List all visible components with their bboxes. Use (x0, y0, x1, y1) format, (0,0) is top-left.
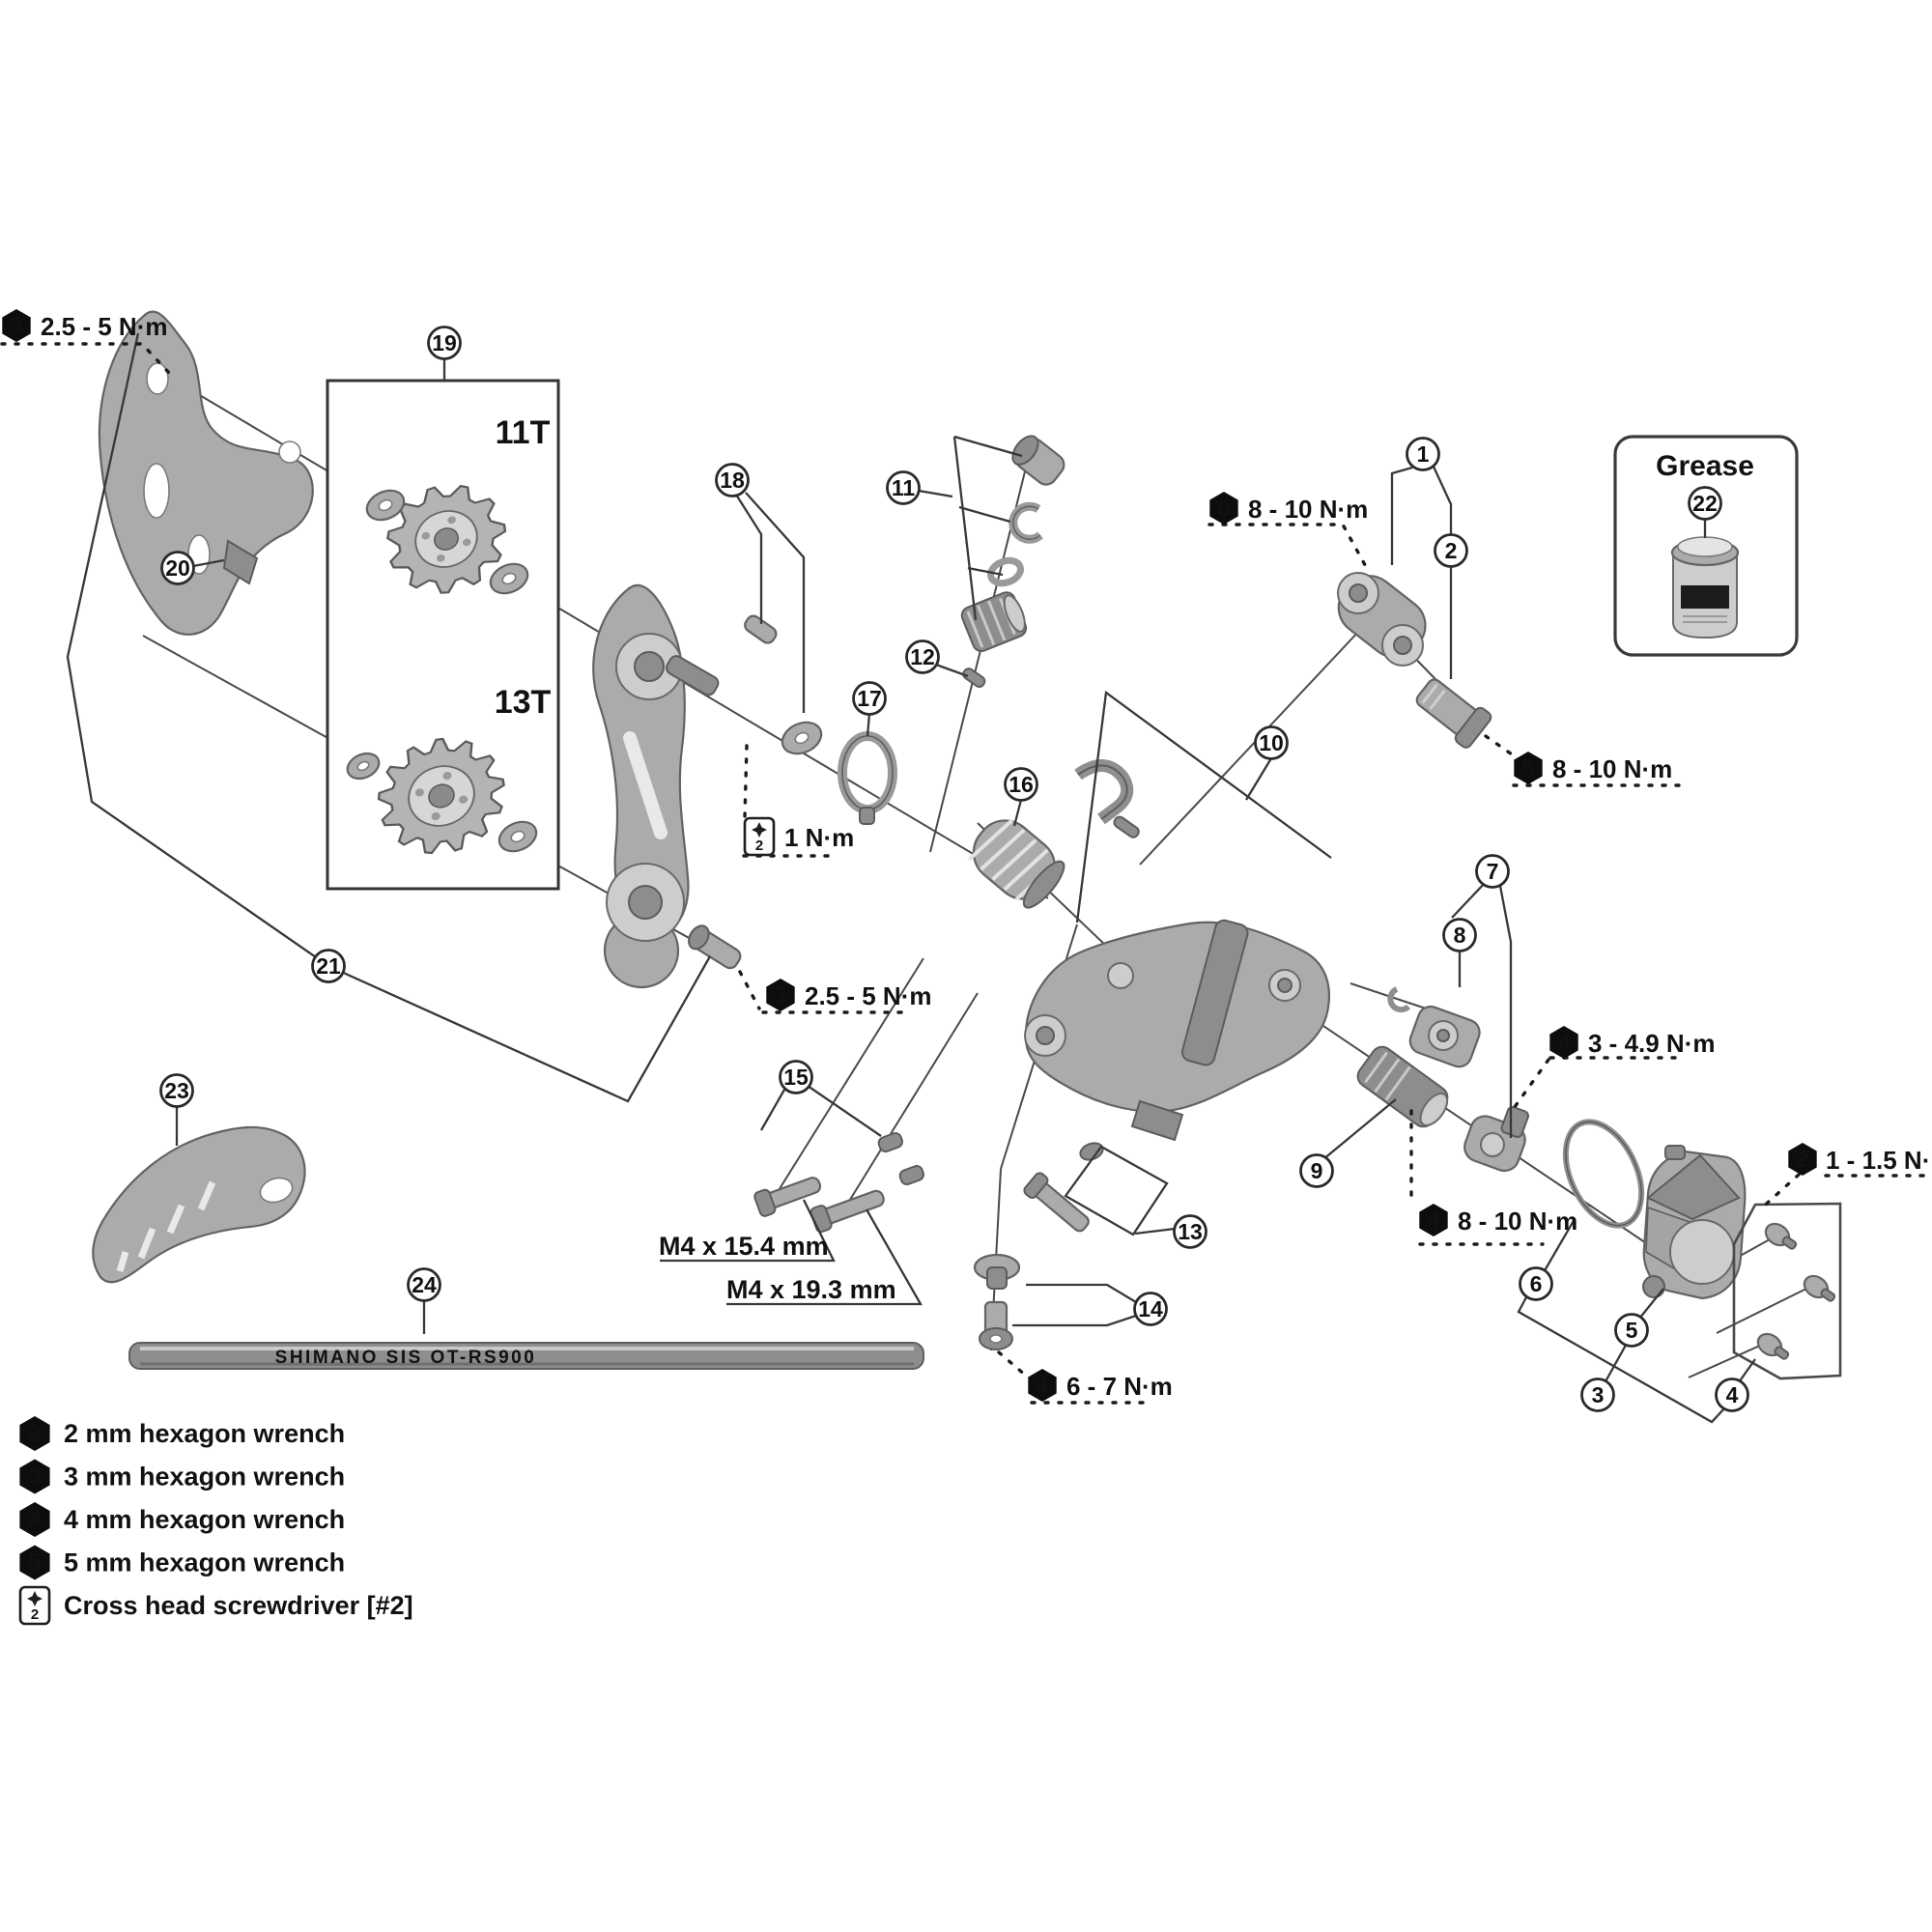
grease-title: Grease (1656, 450, 1754, 482)
tool-legend: 22 mm hexagon wrench33 mm hexagon wrench… (19, 1416, 412, 1624)
callout-2: 2 (1435, 535, 1467, 567)
torque-label-1: 32.5 - 5 N·m (2, 309, 167, 342)
callout-21: 21 (313, 951, 345, 982)
callout-16: 16 (1006, 769, 1037, 801)
legend-item-3: 44 mm hexagon wrench (19, 1502, 345, 1537)
tool-size: 3 (775, 982, 787, 1008)
torque-label-7: 46 - 7 N·m (1028, 1369, 1173, 1402)
callout-22: 22 (1690, 488, 1721, 520)
callout-number: 1 (1417, 441, 1430, 467)
cable-adjust-stack (959, 432, 1068, 689)
torque-value: 2.5 - 5 N·m (805, 981, 932, 1010)
callout-number: 12 (910, 644, 935, 669)
callout-5: 5 (1616, 1315, 1648, 1347)
legend-tool-symbol: 3 (28, 1463, 42, 1490)
callout-14: 14 (1135, 1293, 1167, 1325)
callout-7: 7 (1477, 856, 1509, 888)
callout-10: 10 (1256, 727, 1288, 759)
label-pulley-13t: 13T (495, 684, 552, 721)
callout-17: 17 (854, 683, 886, 715)
legend-tool-symbol: 5 (28, 1549, 42, 1576)
callout-3: 3 (1582, 1379, 1614, 1411)
cover-screw-set (1734, 1204, 1840, 1378)
torque-value: 1 - 1.5 N·m (1826, 1146, 1932, 1175)
torque-label-3: 58 - 10 N·m (1514, 752, 1672, 784)
callout-number: 23 (164, 1078, 189, 1103)
callout-number: 3 (1592, 1382, 1605, 1407)
callout-number: 9 (1311, 1158, 1323, 1183)
callout-24: 24 (409, 1269, 440, 1301)
callout-1: 1 (1407, 439, 1439, 470)
tool-size: 2 (755, 838, 763, 854)
cable-fixing-bracket (1461, 1095, 1535, 1175)
legend-tool-symbol: 2 (31, 1606, 39, 1623)
torque-label-6: 48 - 10 N·m (1419, 1204, 1577, 1236)
legend-item-5: 2Cross head screwdriver [#2] (20, 1587, 413, 1624)
callout-15: 15 (781, 1062, 812, 1094)
torque-label-8: 32.5 - 5 N·m (766, 979, 931, 1011)
callout-19: 19 (429, 327, 461, 359)
legend-tool-symbol: 4 (28, 1507, 42, 1533)
callout-number: 14 (1138, 1296, 1163, 1321)
legend-item-1: 22 mm hexagon wrench (19, 1416, 345, 1451)
torque-value: 8 - 10 N·m (1552, 754, 1672, 783)
legend-label: 4 mm hexagon wrench (64, 1505, 345, 1534)
tool-size: 5 (1218, 496, 1231, 521)
callout-number: 8 (1454, 923, 1466, 948)
callout-number: 11 (892, 475, 916, 500)
motor-unit (1643, 1146, 1745, 1298)
tool-size: 2 (1797, 1147, 1809, 1172)
legend-label: 5 mm hexagon wrench (64, 1548, 345, 1577)
callout-4: 4 (1717, 1379, 1748, 1411)
tool-size: 4 (1037, 1373, 1049, 1398)
tool-size: 4 (1428, 1207, 1440, 1233)
torque-value: 2.5 - 5 N·m (41, 312, 168, 341)
callout-9: 9 (1301, 1155, 1333, 1187)
bracket-axle-unit (1328, 565, 1493, 750)
grease-box: Grease (1615, 437, 1797, 655)
torque-value: 8 - 10 N·m (1248, 495, 1368, 524)
torque-value: 6 - 7 N·m (1066, 1372, 1173, 1401)
washer (778, 717, 827, 759)
parts-layer: SHIMANO SIS OT-RS900 Grease (93, 312, 1840, 1378)
legend-label: 2 mm hexagon wrench (64, 1419, 345, 1448)
callout-number: 19 (432, 330, 457, 355)
exploded-parts-diagram: SHIMANO SIS OT-RS900 Grease (0, 0, 1932, 1932)
callout-13: 13 (1175, 1216, 1207, 1248)
torque-value: 1 N·m (784, 823, 854, 852)
callout-number: 17 (857, 686, 882, 711)
callout-20: 20 (162, 553, 194, 584)
label-pulley-11t: 11T (496, 414, 551, 451)
grease-jar (1672, 537, 1738, 638)
t-nut-and-bolt (975, 1255, 1019, 1350)
callout-number: 5 (1626, 1318, 1638, 1343)
cable-hook (1078, 765, 1141, 838)
stabilizer-plate (93, 1127, 304, 1282)
callout-12: 12 (907, 641, 939, 673)
callout-number: 18 (720, 468, 745, 493)
callout-6: 6 (1520, 1268, 1552, 1300)
torque-label-5: 21 - 1.5 N·m (1788, 1143, 1932, 1176)
label-bolt-m4-19: M4 x 19.3 mm (726, 1275, 896, 1304)
label-bolt-m4-15: M4 x 15.4 mm (659, 1232, 829, 1261)
plate-mount-bolts (753, 1131, 925, 1233)
torque-label-2: 58 - 10 N·m (1209, 492, 1368, 525)
torque-value: 8 - 10 N·m (1458, 1207, 1577, 1236)
tool-size: 4 (1558, 1030, 1571, 1055)
callout-number: 24 (412, 1272, 437, 1297)
callout-number: 20 (165, 555, 190, 581)
callout-number: 16 (1009, 772, 1034, 797)
legend-label: 3 mm hexagon wrench (64, 1463, 345, 1492)
callout-number: 15 (783, 1065, 809, 1090)
callout-18: 18 (717, 465, 749, 497)
torque-value: 3 - 4.9 N·m (1588, 1029, 1716, 1058)
callout-number: 7 (1487, 859, 1499, 884)
legend-item-4: 55 mm hexagon wrench (19, 1546, 345, 1580)
callout-number: 21 (316, 953, 341, 979)
callout-number: 13 (1178, 1219, 1203, 1244)
tool-size: 3 (11, 313, 23, 338)
stroke-adjust-bolt (1022, 1140, 1105, 1236)
callout-8: 8 (1444, 920, 1476, 952)
cable-print: SHIMANO SIS OT-RS900 (275, 1348, 537, 1368)
callout-11: 11 (888, 472, 920, 504)
legend-label: Cross head screwdriver [#2] (64, 1591, 413, 1620)
callout-number: 10 (1259, 730, 1284, 755)
diagram-canvas: SHIMANO SIS OT-RS900 Grease (0, 0, 1932, 1932)
callout-number: 4 (1726, 1382, 1739, 1407)
tool-size: 5 (1522, 755, 1535, 781)
callout-number: 22 (1692, 491, 1718, 516)
callout-number: 6 (1530, 1271, 1543, 1296)
shift-cable-casing: SHIMANO SIS OT-RS900 (129, 1343, 923, 1369)
legend-tool-symbol: 2 (28, 1421, 42, 1447)
callout-number: 2 (1445, 538, 1458, 563)
torque-label-9: 21 N·m (745, 818, 854, 855)
torque-label-4: 43 - 4.9 N·m (1549, 1026, 1715, 1059)
legend-item-2: 33 mm hexagon wrench (19, 1460, 345, 1494)
derailleur-body (1025, 919, 1329, 1140)
cage-pivot-bolt-lower (685, 923, 745, 973)
callout-23: 23 (161, 1075, 193, 1107)
